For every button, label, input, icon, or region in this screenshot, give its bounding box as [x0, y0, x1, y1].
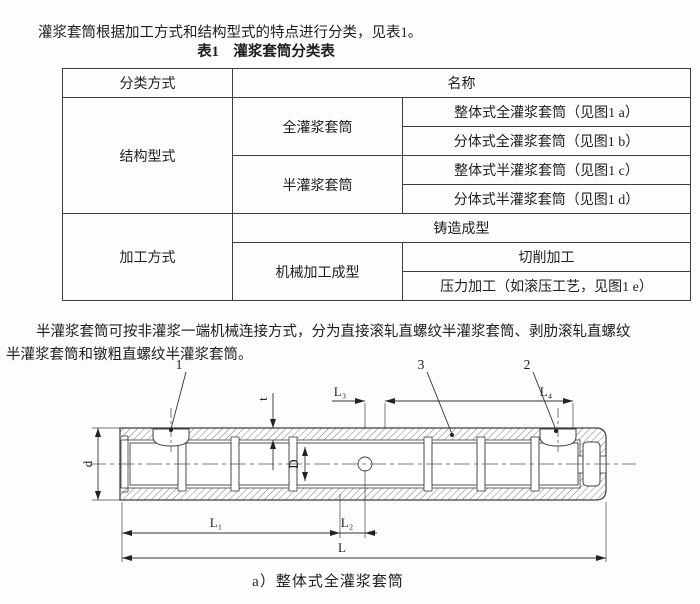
- callout-2-label: 2: [524, 357, 531, 372]
- table-cell-full-split: 分体式全灌浆套筒（见图1 b）: [403, 127, 691, 156]
- table-cell-half-split: 分体式半灌浆套筒（见图1 d）: [403, 185, 691, 214]
- callout-1-label: 1: [176, 357, 183, 372]
- callout-leaders: [171, 372, 556, 434]
- dim-label-L4: L₄: [540, 384, 553, 399]
- table-caption: 表1 灌浆套筒分类表: [0, 40, 532, 61]
- table-cell-full-integral: 整体式全灌浆套筒（见图1 a）: [403, 98, 691, 127]
- document-page: 灌浆套筒根据加工方式和结构型式的特点进行分类，见表1。 表1 灌浆套筒分类表 分…: [0, 0, 700, 604]
- table-row: 结构型式 全灌浆套筒 整体式全灌浆套筒（见图1 a）: [63, 98, 691, 127]
- table-cell-pressing: 压力加工（如滚压工艺，见图1 e）: [403, 272, 691, 301]
- sleeve-section-drawing: d t D L₃ L₄ L₁ L₂ L 1 3 2: [0, 352, 700, 574]
- table-row: 分类方式 名称: [63, 69, 691, 98]
- table-cell-name-header: 名称: [233, 69, 691, 98]
- dim-label-L: L: [338, 540, 346, 555]
- dim-label-L1: L₁: [210, 515, 222, 530]
- classification-table: 分类方式 名称 结构型式 全灌浆套筒 整体式全灌浆套筒（见图1 a） 分体式全灌…: [62, 68, 691, 301]
- table-row: 加工方式 铸造成型: [63, 214, 691, 243]
- figure-caption: a）整体式全灌浆套筒: [0, 570, 656, 591]
- dim-label-d: d: [80, 460, 95, 467]
- dim-label-D: D: [286, 459, 301, 468]
- callout-3-label: 3: [418, 357, 425, 372]
- table-cell-cutting: 切削加工: [403, 243, 691, 272]
- table-cell-structure: 结构型式: [63, 98, 233, 214]
- dim-label-L3: L₃: [334, 384, 346, 399]
- dim-label-t: t: [255, 397, 270, 401]
- table-cell-casting: 铸造成型: [233, 214, 691, 243]
- table-cell-process: 加工方式: [63, 214, 233, 301]
- table-cell-half-integral: 整体式半灌浆套筒（见图1 c）: [403, 156, 691, 185]
- table-cell-machining: 机械加工成型: [233, 243, 403, 301]
- paragraph-line: 半灌浆套筒可按非灌浆一端机械连接方式，分为直接滚轧直螺纹半灌浆套筒、剥肋滚轧直螺…: [6, 321, 694, 344]
- dim-label-L2: L₂: [341, 515, 353, 530]
- table-cell-classification-header: 分类方式: [63, 69, 233, 98]
- table-cell-half-sleeve: 半灌浆套筒: [233, 156, 403, 214]
- table-cell-full-sleeve: 全灌浆套筒: [233, 98, 403, 156]
